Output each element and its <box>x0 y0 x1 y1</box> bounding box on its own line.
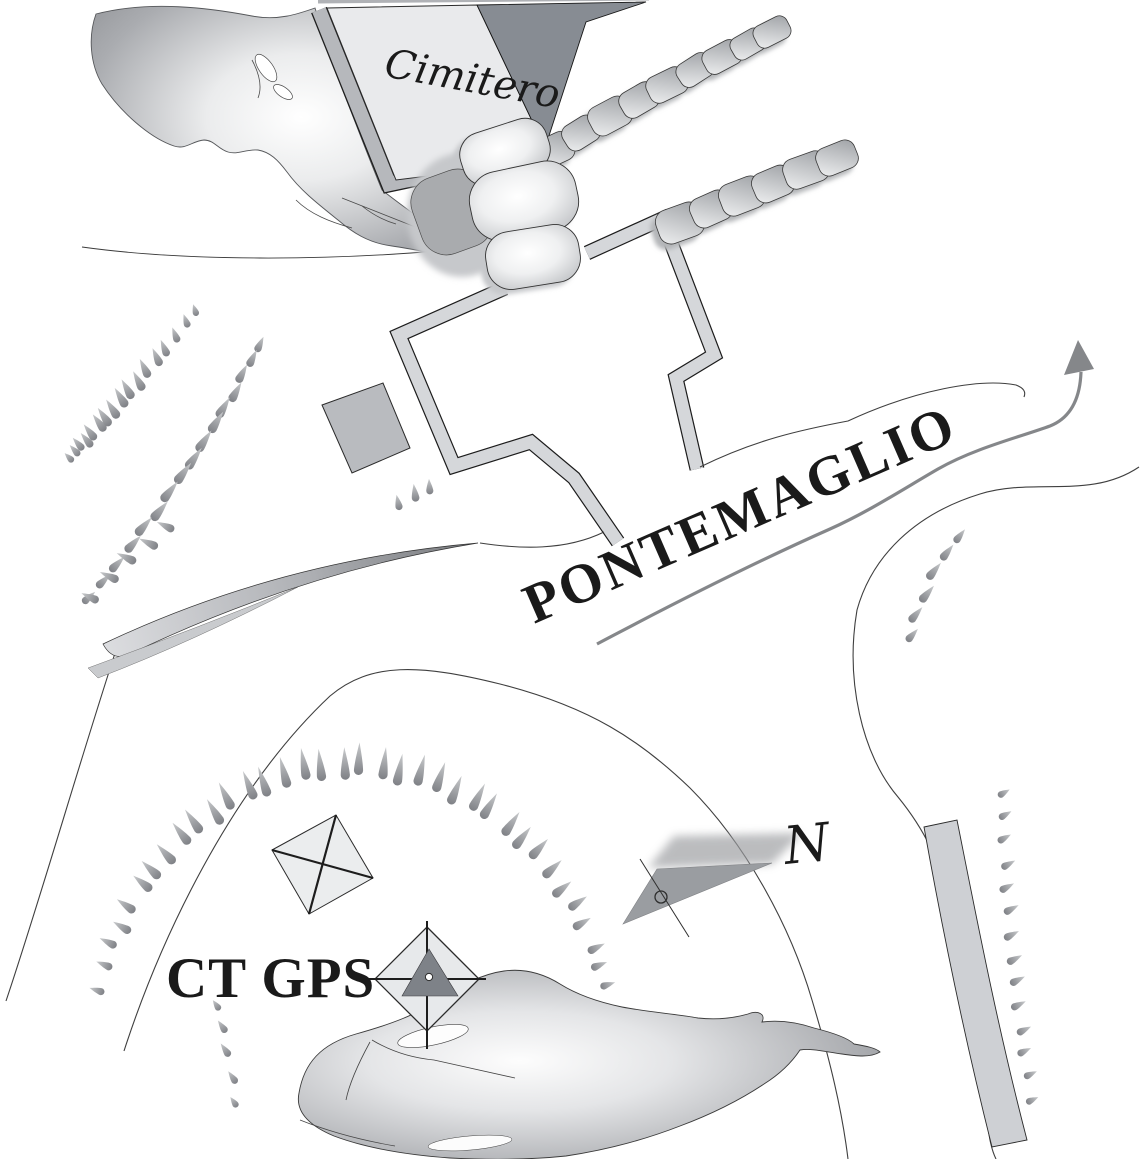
north-arrow: N <box>623 812 834 937</box>
small-building-square <box>322 383 410 473</box>
wall-west <box>399 288 618 542</box>
direction-arrowhead-icon <box>1064 340 1094 375</box>
rock-outcrop-south <box>298 970 880 1159</box>
embankment-sliver-2 <box>88 587 298 678</box>
road-edge-upper-1 <box>480 532 604 547</box>
rock-base-line <box>82 247 437 258</box>
north-arrow-shadow <box>648 833 802 868</box>
north-label: N <box>779 812 834 877</box>
road-edge-west <box>6 644 118 1001</box>
north-arrow-icon <box>623 863 772 924</box>
control-point-label: CT GPS <box>166 947 375 1010</box>
ruin-square-symbol <box>272 815 373 914</box>
site-map-figure: Cimitero <box>0 0 1140 1159</box>
station-center-dot <box>425 973 432 980</box>
place-name-label: PONTEMAGLIO <box>514 393 966 635</box>
embankment-sliver <box>103 543 478 657</box>
site-map-canvas: Cimitero <box>0 0 1140 1159</box>
road-centerline <box>597 372 1081 644</box>
